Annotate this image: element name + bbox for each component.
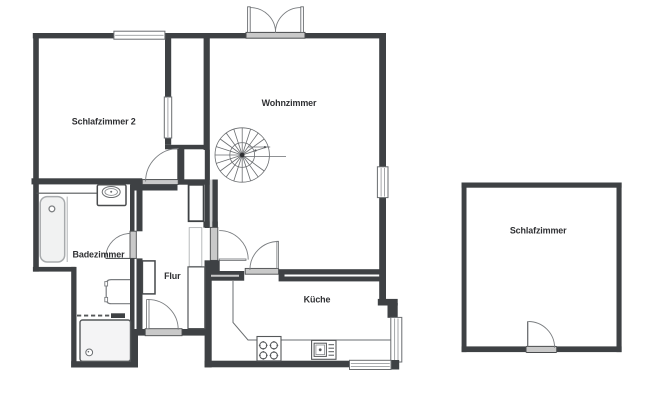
svg-text:Schlafzimmer 2: Schlafzimmer 2 <box>72 117 136 127</box>
svg-text:Wohnzimmer: Wohnzimmer <box>262 98 317 108</box>
svg-text:Schlafzimmer: Schlafzimmer <box>510 225 567 235</box>
svg-text:Küche: Küche <box>304 294 331 304</box>
svg-text:Badezimmer: Badezimmer <box>73 250 126 260</box>
svg-text:Flur: Flur <box>164 271 181 281</box>
